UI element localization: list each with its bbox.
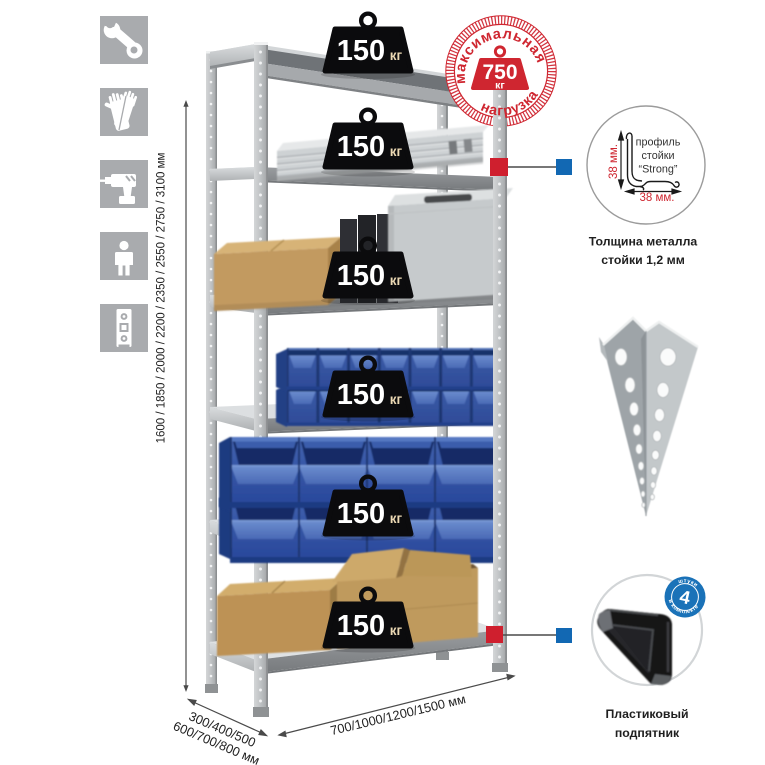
svg-text:кг: кг: [390, 273, 403, 288]
svg-text:150: 150: [337, 610, 385, 642]
svg-text:Пластиковый: Пластиковый: [605, 707, 688, 721]
svg-text:кг: кг: [390, 144, 403, 159]
svg-text:Толщина металла: Толщина металла: [589, 235, 698, 249]
svg-text:150: 150: [337, 498, 385, 530]
svg-text:38 мм.: 38 мм.: [640, 192, 675, 204]
svg-text:кг: кг: [390, 511, 403, 526]
svg-text:кг: кг: [390, 392, 403, 407]
svg-text:38 мм.: 38 мм.: [608, 144, 620, 179]
svg-text:150: 150: [337, 379, 385, 411]
svg-text:1600 / 1850 / 2000 / 2200 / 23: 1600 / 1850 / 2000 / 2200 / 2350 / 2550 …: [156, 153, 168, 444]
svg-text:150: 150: [337, 131, 385, 163]
svg-text:кг: кг: [495, 80, 505, 92]
svg-text:стойки 1,2 мм: стойки 1,2 мм: [601, 253, 685, 267]
svg-text:кг: кг: [390, 48, 403, 63]
svg-text:150: 150: [337, 260, 385, 292]
svg-text:“Strong”: “Strong”: [638, 164, 677, 176]
svg-text:профиль: профиль: [636, 137, 681, 149]
svg-text:стойки: стойки: [641, 150, 674, 162]
svg-text:подпятник: подпятник: [615, 726, 680, 740]
svg-text:150: 150: [337, 35, 385, 67]
svg-text:кг: кг: [390, 623, 403, 638]
